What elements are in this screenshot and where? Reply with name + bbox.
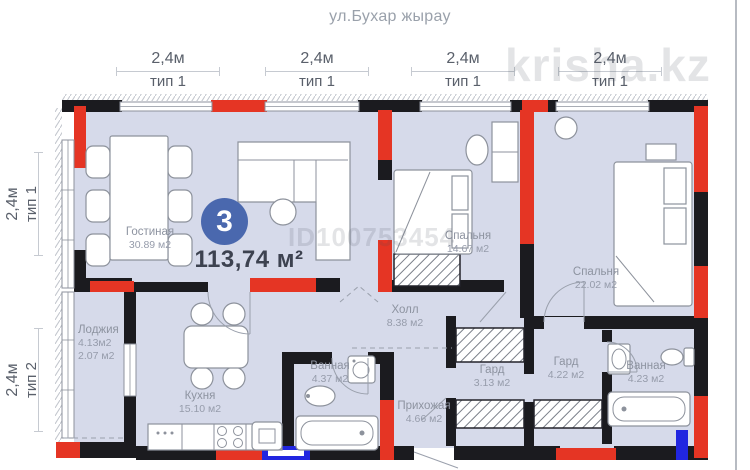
- room-label-bedroom-2: Спальня 22.02 м2: [573, 266, 619, 292]
- street-label: ул.Бухар жырау: [270, 8, 510, 26]
- room-label-hall: Холл 8.38 м2: [387, 304, 423, 330]
- floorplan-page: ул.Бухар жырау krisha.kz ID100753454 2,4…: [0, 0, 750, 470]
- rooms-count-badge: 3: [201, 198, 248, 245]
- total-area-label: 113,74 м²: [166, 246, 332, 274]
- dimension-line: [116, 71, 220, 72]
- site-watermark: krisha.kz: [505, 38, 711, 92]
- room-label-bathroom-2: Ванная 4.23 м2: [626, 360, 665, 386]
- dimension-left-2: 2,4м тип 2: [4, 325, 40, 435]
- room-label-wardrobe-1: Гард 3.13 м2: [474, 364, 510, 390]
- dimension-length: 2,4м: [108, 50, 228, 68]
- dimension-top-2: 2,4м тип 1: [257, 50, 377, 90]
- dimension-length: 2,4м: [257, 50, 377, 68]
- dimension-type: тип 1: [108, 73, 228, 90]
- room-label-kitchen: Кухня 15.10 м2: [179, 390, 221, 416]
- dimension-length: 2,4м: [4, 149, 22, 259]
- dimension-top-1: 2,4м тип 1: [108, 50, 228, 90]
- dimension-length: 2,4м: [4, 325, 22, 435]
- dimension-line: [265, 71, 369, 72]
- dimension-left-1: 2,4м тип 1: [4, 149, 40, 259]
- room-label-wardrobe-2: Гард 4.22 м2: [548, 356, 584, 382]
- dimension-type: тип 2: [23, 325, 40, 435]
- page-edge-line: [735, 0, 737, 470]
- room-label-loggia: Лоджия 4.13м2 2.07 м2: [78, 324, 119, 363]
- dimension-type: тип 1: [23, 149, 40, 259]
- room-label-entry-hall: Прихожая 4.66 м2: [397, 400, 450, 426]
- dimension-type: тип 1: [257, 73, 377, 90]
- room-label-bathroom-1: Ванная 4.37 м2: [310, 360, 349, 386]
- dimension-line: [411, 71, 515, 72]
